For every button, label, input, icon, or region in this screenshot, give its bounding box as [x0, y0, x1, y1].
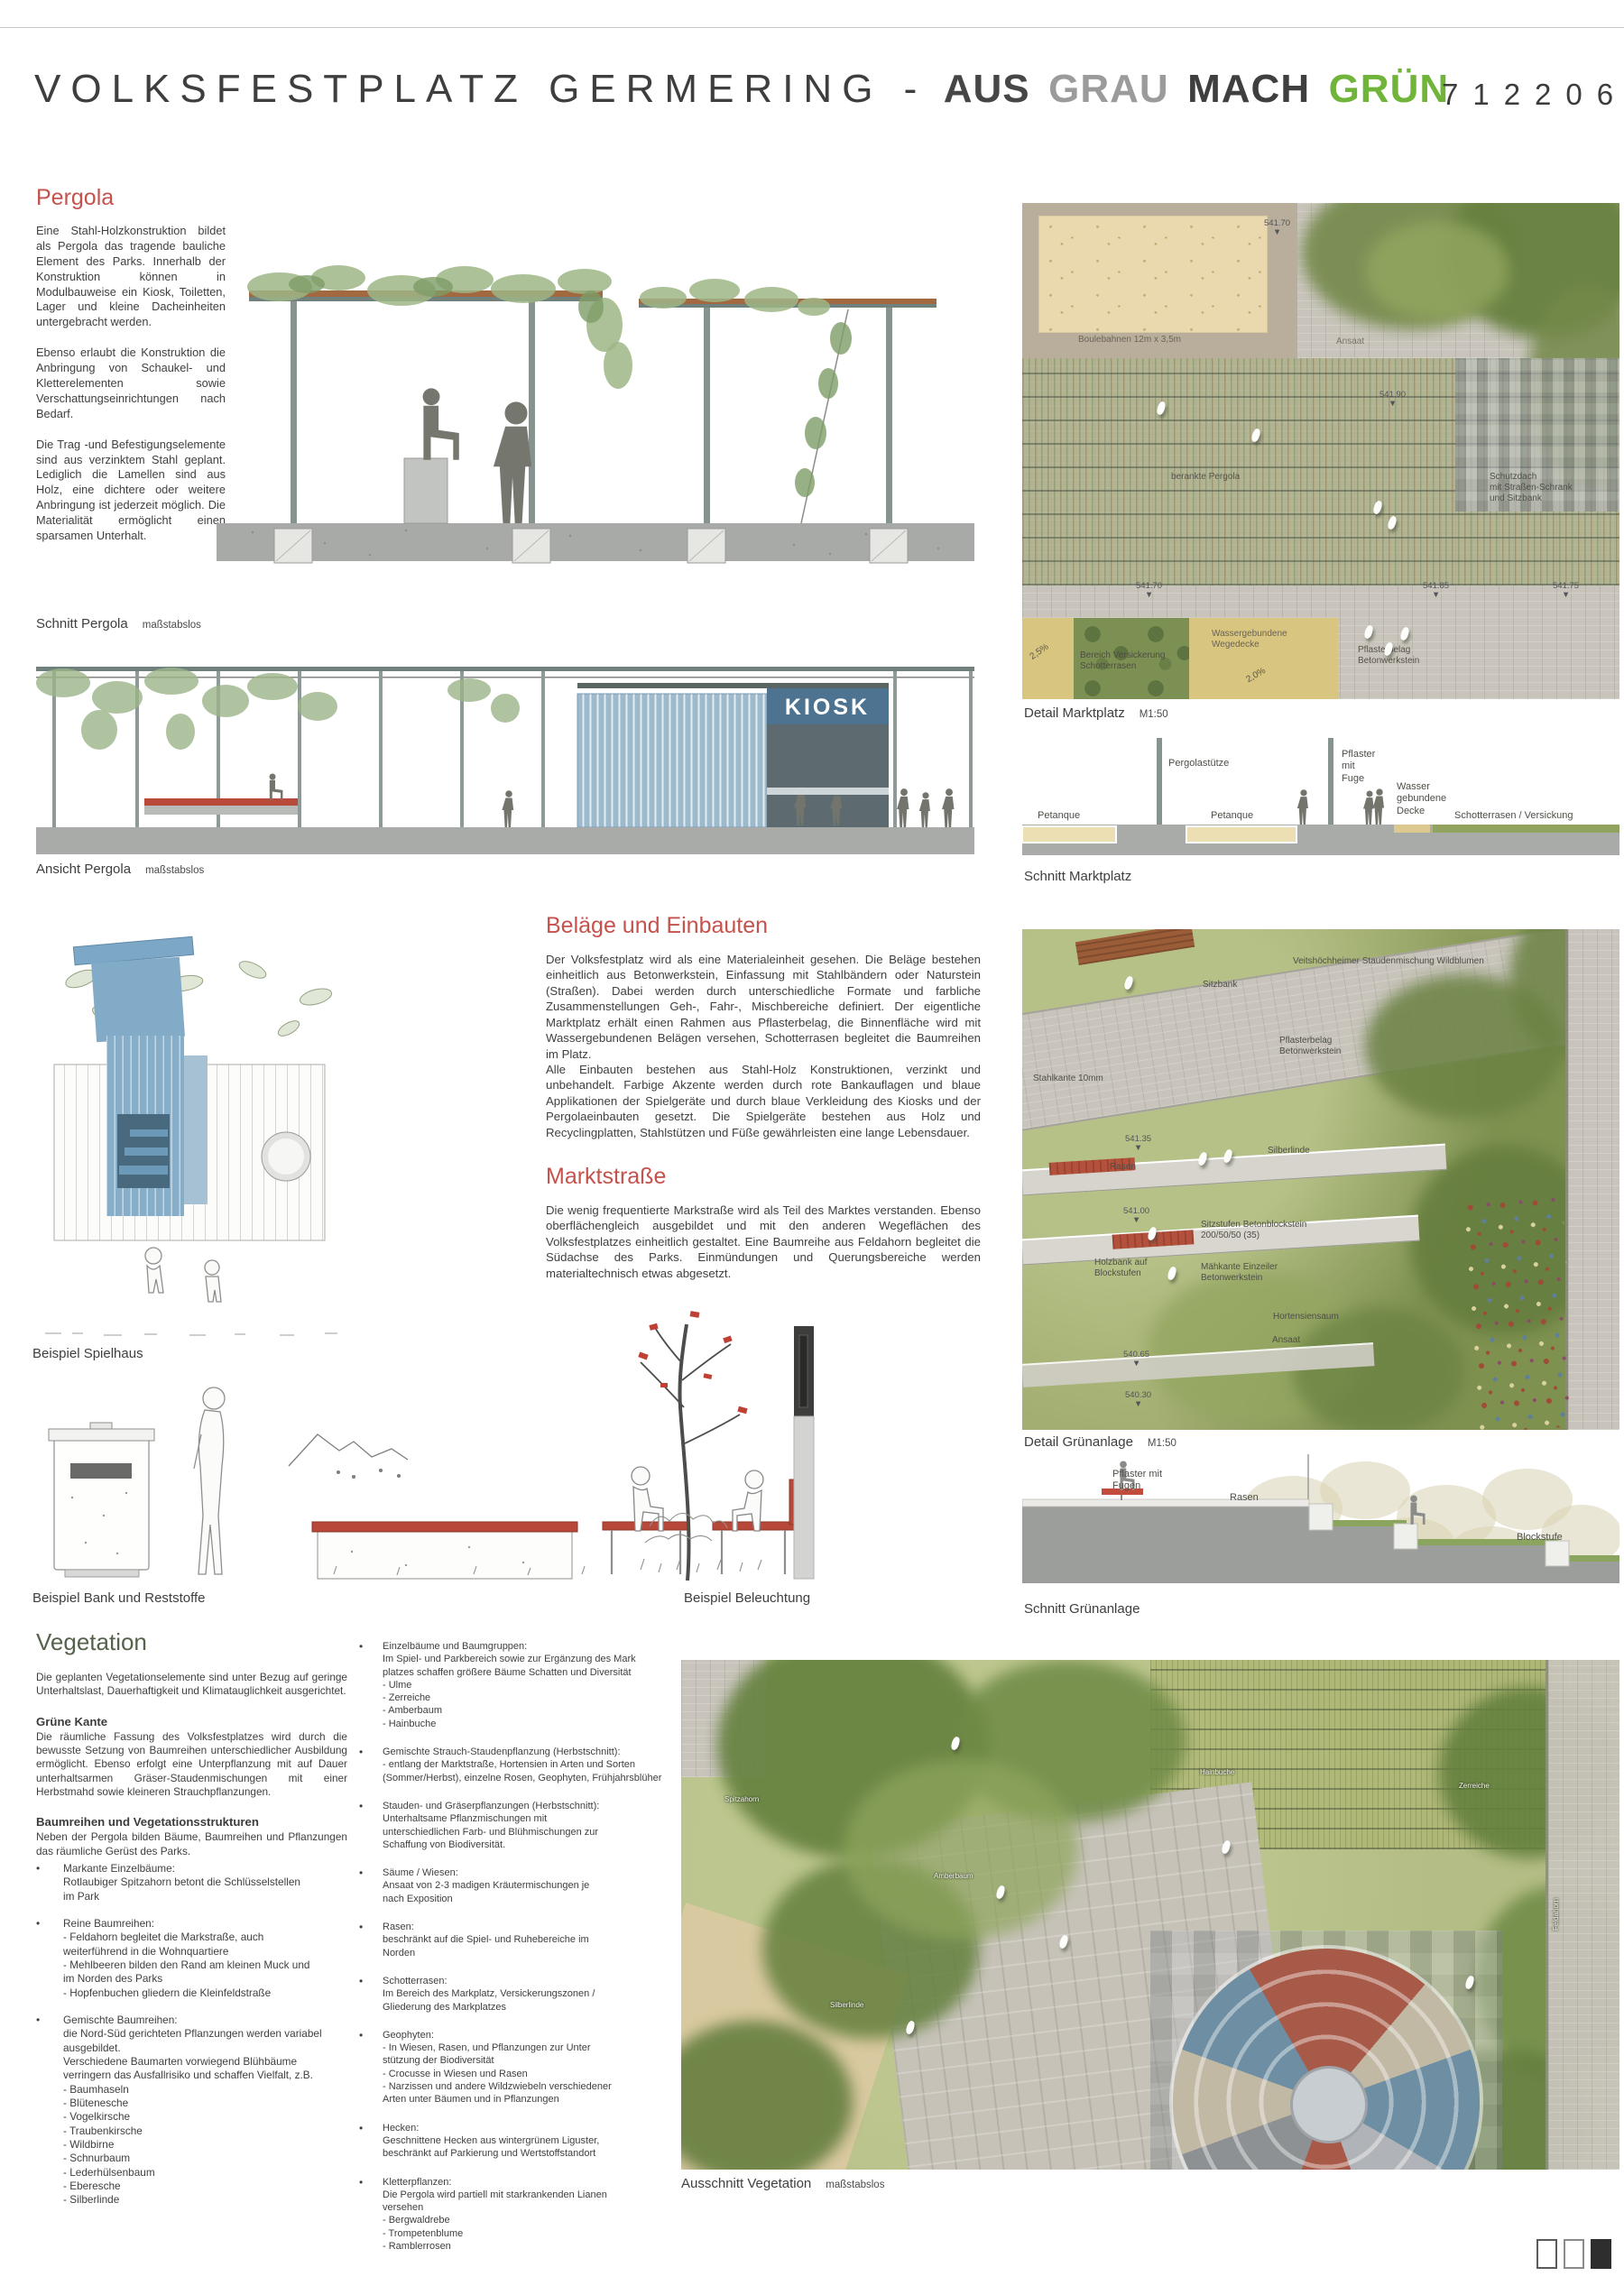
bullet-lines: Die Pergola wird partiell mit starkranke…: [383, 2189, 677, 2253]
list-item: •Rasen:beschränkt auf die Spiel- und Ruh…: [359, 1921, 677, 1959]
bullet-lines: Geschnittene Hecken aus wintergrünem Lig…: [383, 2134, 677, 2161]
page-box-3-active: [1591, 2239, 1611, 2269]
pflaster-slab: [1022, 1499, 1309, 1507]
gruene-kante-text: Die räumliche Fassung des Volksfestplatz…: [36, 1730, 347, 1800]
bullet-title: Säume / Wiesen:: [383, 1866, 677, 1879]
plant-tag: Spitzahorn: [724, 1795, 759, 1803]
elev-marker: 540.65 ▼: [1123, 1350, 1149, 1368]
fruit-tree-sketch: [638, 1311, 747, 1581]
mosaic-circle-center: [1290, 2066, 1368, 2143]
mountain-scribble: [289, 1434, 408, 1478]
caption-schnitt-pergola: Schnitt Pergolamaßstabslos: [36, 616, 201, 631]
bench-long: [312, 1522, 577, 1579]
page-box-2: [1564, 2239, 1584, 2269]
label-maehkante: Mähkante Einzeiler Betonwerkstein: [1201, 1262, 1278, 1284]
caption-ausschnitt-vegetation: Ausschnitt Vegetationmaßstabslos: [681, 2176, 884, 2191]
label-sitzbank: Sitzbank: [1203, 980, 1237, 991]
tree-canopy-light: [1365, 221, 1509, 320]
seated-figures-sketch: [632, 1467, 763, 1531]
plant-tag: Hainbuche: [1200, 1768, 1234, 1776]
vegetation-list-col2-wrap: •Einzelbäume und Baumgruppen:Im Spiel- u…: [359, 1640, 677, 2268]
plant-tag: Feldahorn: [1552, 1898, 1560, 1931]
section-person-3: [1373, 788, 1384, 825]
label-schotterrasen-versickung: Schotterrasen / Versickung: [1454, 810, 1573, 822]
title-aus: AUS: [944, 67, 1030, 111]
elev-marker: 541.90 ▼: [1379, 391, 1406, 408]
vegetation-list-col1: •Markante Einzelbäume:Rotlaubiger Spitza…: [36, 1862, 347, 2207]
plan-figure: [1399, 626, 1410, 641]
caption-detail-gruenanlage: Detail GrünanlageM1:50: [1024, 1434, 1176, 1450]
petanque-inset-1: [1022, 826, 1116, 843]
bullet-lines: Ansaat von 2-3 madigen Kräutermischungen…: [383, 1879, 677, 1905]
caption-schnitt-gruenanlage: Schnitt Grünanlage: [1024, 1601, 1140, 1617]
detail-gruenanlage-plan: Veitshöchheimer Staudenmischung Wildblum…: [1022, 929, 1619, 1430]
bullet-title: Geophyten:: [383, 2029, 677, 2042]
vegetation-section-text: Vegetation Die geplanten Vegetationselem…: [36, 1628, 347, 2221]
bullet-title: Hecken:: [383, 2122, 677, 2134]
bullet-title: Schotterrasen:: [383, 1975, 677, 1987]
list-item: •Gemischte Baumreihen:die Nord-Süd geric…: [36, 2014, 347, 2207]
label-pflasterbelag: Pflasterbelag Betonwerkstein: [1279, 1036, 1341, 1057]
belaege-section-text: Beläge und Einbauten Der Volksfestplatz …: [546, 913, 981, 1296]
marktstrasse-strip: [1565, 929, 1619, 1430]
poster: VOLKSFESTPLATZ GERMERING - AUS GRAU MACH…: [0, 0, 1624, 2295]
tree-canopy-light: [844, 1759, 1078, 1940]
title-gruen: GRÜN: [1329, 67, 1450, 111]
boule-court: [1038, 216, 1268, 333]
bullet-lines: - In Wiesen, Rasen, und Pflanzungen zur …: [383, 2042, 677, 2106]
ansicht-ground: [36, 827, 974, 854]
caption-schnitt-marktplatz: Schnitt Marktplatz: [1024, 869, 1131, 884]
wassergebundene-strip: [1394, 825, 1430, 833]
label-staudenmischung: Veitshöchheimer Staudenmischung Wildblum…: [1293, 956, 1484, 967]
bullet-lines: die Nord-Süd gerichteten Pflanzungen wer…: [63, 2027, 347, 2207]
hortensien-band: [1461, 1192, 1578, 1430]
petanque-inset-2: [1186, 826, 1296, 843]
cube-bench: [404, 458, 448, 523]
vegetation-heading: Vegetation: [36, 1628, 347, 1656]
pergola-stuetze-1: [1157, 738, 1162, 825]
label-berankte-pergola: berankte Pergola: [1171, 472, 1240, 483]
label-pflaster-mit-fuge: Pflaster mit Fuge: [1342, 749, 1375, 785]
pergola-paragraph-1: Eine Stahl-Holzkonstruktion bildet als P…: [36, 224, 226, 330]
pergola-heading: Pergola: [36, 185, 226, 211]
bullet-lines: Unterhaltsame Pflanzmischungen mit unter…: [383, 1812, 677, 1851]
seated-person: [270, 774, 283, 800]
elev-marker: 541.70 ▼: [1136, 582, 1162, 599]
page-title: VOLKSFESTPLATZ GERMERING -: [34, 67, 927, 111]
label-pergolastuetze: Pergolastütze: [1168, 758, 1229, 770]
bench-brown: [1075, 929, 1195, 965]
label-hortensiensaum: Hortensiensaum: [1273, 1312, 1339, 1323]
label-schutzdach: Schutzdach mit Straßen-Schrank und Sitzb…: [1490, 472, 1573, 505]
caption-beispiel-beleuchtung: Beispiel Beleuchtung: [684, 1590, 810, 1606]
belaege-heading: Beläge und Einbauten: [546, 913, 981, 939]
person-walking: [502, 790, 513, 827]
label-ansaat: Ansaat: [1336, 336, 1364, 347]
list-item: •Einzelbäume und Baumgruppen:Im Spiel- u…: [359, 1640, 677, 1730]
bench-short: [603, 1522, 689, 1574]
list-item: •Kletterpflanzen:Die Pergola wird partie…: [359, 2176, 677, 2254]
header: VOLKSFESTPLATZ GERMERING - AUS GRAU MACH…: [34, 67, 1449, 112]
title-mach: MACH: [1187, 67, 1310, 111]
vegetation-intro: Die geplanten Vegetationselemente sind u…: [36, 1671, 347, 1699]
top-rule: [0, 27, 1624, 28]
list-item: •Schotterrasen:Im Bereich des Markplatz,…: [359, 1975, 677, 2014]
elev-marker: 541.85 ▼: [1423, 582, 1449, 599]
elev-marker: 541.35 ▼: [1125, 1135, 1151, 1152]
pergola-paragraph-2: Ebenso erlaubt die Konstruktion die Anbr…: [36, 346, 226, 421]
ground-band: [217, 523, 974, 561]
standing-man-sketch: [194, 1387, 225, 1574]
plan-figure: [1167, 1266, 1177, 1281]
elev-marker: 541.75 ▼: [1553, 582, 1579, 599]
bullet-lines: Im Spiel- und Parkbereich sowie zur Ergä…: [383, 1653, 677, 1730]
bullet-title: Rasen:: [383, 1921, 677, 1933]
label-ansaat: Ansaat: [1272, 1335, 1300, 1346]
bullet-title: Gemischte Strauch-Staudenpflanzung (Herb…: [383, 1746, 677, 1758]
label-versickerung: Bereich Versickerung Schotterrasen: [1080, 650, 1166, 672]
bench-red-seat: [144, 798, 298, 806]
caption-detail-marktplatz: Detail MarktplatzM1:50: [1024, 705, 1168, 721]
bullet-title: Stauden- und Gräserpflanzungen (Herbstsc…: [383, 1800, 677, 1812]
page-box-1: [1536, 2239, 1557, 2269]
list-item: •Reine Baumreihen:- Feldahorn begleitet …: [36, 1917, 347, 2000]
elev-marker: 540.30 ▼: [1125, 1391, 1151, 1408]
label-holzbank: Holzbank auf Blockstufen: [1094, 1258, 1147, 1279]
ansicht-foliage: [36, 668, 520, 750]
label-blockstufe: Blockstufe: [1517, 1532, 1563, 1544]
kiosk-counter: [767, 788, 889, 795]
plan-figure: [1123, 975, 1134, 991]
bullet-title: Markante Einzelbäume:: [63, 1862, 347, 1876]
detail-marktplatz-plan: Boulebahnen 12m x 3,5m 541.70 ▼ Ansaat b…: [1022, 203, 1619, 699]
ansicht-pergola-drawing: KIOSK: [36, 654, 974, 866]
list-item: •Stauden- und Gräserpflanzungen (Herbsts…: [359, 1800, 677, 1851]
bullet-lines: Im Bereich des Markplatz, Versickerungsz…: [383, 1987, 677, 2014]
person-group-2: [919, 792, 930, 827]
kiosk-roof-edge: [577, 683, 889, 688]
section-person-2: [1363, 790, 1374, 825]
waste-bin: [49, 1423, 154, 1577]
gruene-kante-subheading: Grüne Kante: [36, 1715, 347, 1728]
caption-ansicht-pergola: Ansicht Pergolamaßstabslos: [36, 862, 204, 877]
bullet-lines: Rotlaubiger Spitzahorn betont die Schlüs…: [63, 1876, 347, 1903]
pergola-section-text: Pergola Eine Stahl-Holzkonstruktion bild…: [36, 185, 226, 559]
plant-tag: Zerreiche: [1459, 1782, 1490, 1790]
page-indicator: [1536, 2239, 1611, 2269]
elev-marker: 541.00 ▼: [1123, 1207, 1149, 1224]
kiosk-sign-text: KIOSK: [785, 695, 870, 720]
marktstrasse-heading: Marktstraße: [546, 1164, 981, 1190]
sitting-person-silhouette: [423, 388, 459, 459]
section-person-1: [1297, 789, 1308, 825]
label-petanque-1: Petanque: [1038, 810, 1080, 822]
label-rasen: Rasen: [1110, 1162, 1136, 1173]
street-lamp: [794, 1326, 814, 1579]
list-item: •Geophyten:- In Wiesen, Rasen, und Pflan…: [359, 2029, 677, 2106]
label-sitzstufen: Sitzstufen Betonblockstein 200/50/50 (35…: [1201, 1220, 1306, 1241]
baumreihen-subheading: Baumreihen und Vegetationsstrukturen: [36, 1815, 347, 1829]
caption-beispiel-bank: Beispiel Bank und Reststoffe: [32, 1590, 206, 1606]
pergola-foliage: [247, 265, 830, 389]
label-wasser-gebundene-decke: Wasser gebundene Decke: [1397, 781, 1446, 817]
label-silberlinde: Silberlinde: [1268, 1146, 1310, 1157]
elev-marker: 541.70 ▼: [1264, 219, 1290, 236]
label-stahlkante: Stahlkante 10mm: [1033, 1074, 1103, 1084]
schnitt-marktplatz-drawing: [1022, 733, 1619, 868]
schnitt-pergola-drawing: [217, 171, 974, 604]
label-pflaster-mit-fugen: Pflaster mit Fugen: [1112, 1469, 1162, 1493]
belaege-paragraph-1: Der Volksfestplatz wird als eine Materia…: [546, 952, 981, 1062]
marktstrasse-paragraph: Die wenig frequentierte Markstraße wird …: [546, 1203, 981, 1281]
bullet-title: Gemischte Baumreihen:: [63, 2014, 347, 2027]
porthole-inner: [268, 1138, 304, 1175]
pergola-paragraph-3: Die Trag -und Befestigungselemente sind …: [36, 438, 226, 544]
label-petanque-2: Petanque: [1211, 810, 1253, 822]
bullet-title: Kletterpflanzen:: [383, 2176, 677, 2189]
project-number: 712206: [1442, 78, 1624, 112]
vegetation-list-col2: •Einzelbäume und Baumgruppen:Im Spiel- u…: [359, 1640, 677, 2253]
label-boulebahnen: Boulebahnen 12m x 3,5m: [1078, 335, 1181, 346]
bullet-lines: - Feldahorn begleitet die Markstraße, au…: [63, 1931, 347, 2000]
wegedecke-block-left: [1022, 618, 1074, 699]
standing-person-silhouette: [494, 401, 531, 523]
baumreihen-text: Neben der Pergola bilden Bäume, Baumreih…: [36, 1830, 347, 1858]
title-grau: GRAU: [1048, 67, 1169, 111]
person-group-3: [942, 788, 954, 827]
spielhaus-sketch: [18, 929, 397, 1340]
kiosk-slat-wall: [577, 694, 767, 827]
label-rasen-section: Rasen: [1230, 1492, 1259, 1504]
pergola-stuetze-2: [1328, 738, 1333, 825]
kiosk-interior: [767, 724, 889, 827]
bench-base: [144, 806, 298, 815]
label-wegedecke: Wassergebundene Wegedecke: [1212, 629, 1287, 650]
plant-tag: Amberbaum: [934, 1872, 973, 1880]
bullet-title: Einzelbäume und Baumgruppen:: [383, 1640, 677, 1653]
bullet-lines: beschränkt auf die Spiel- und Ruhebereic…: [383, 1933, 677, 1959]
list-item: •Hecken:Geschnittene Hecken aus wintergr…: [359, 2122, 677, 2161]
list-item: •Säume / Wiesen:Ansaat von 2-3 madigen K…: [359, 1866, 677, 1905]
bullet-lines: - entlang der Marktstraße, Hortensien in…: [383, 1758, 677, 1784]
ausschnitt-vegetation-plan: Spitzahorn Amberbaum Silberlinde Hainbuc…: [681, 1660, 1619, 2170]
schotterrasen-strip: [1433, 825, 1619, 833]
bank-beleuchtung-sketch: [18, 1299, 920, 1597]
list-item: •Gemischte Strauch-Staudenpflanzung (Her…: [359, 1746, 677, 1784]
list-item: •Markante Einzelbäume:Rotlaubiger Spitza…: [36, 1862, 347, 1903]
bullet-title: Reine Baumreihen:: [63, 1917, 347, 1931]
kid-figures: [145, 1248, 221, 1302]
belaege-paragraph-2: Alle Einbauten bestehen aus Stahl-Holz K…: [546, 1062, 981, 1140]
plan-figure: [1363, 624, 1374, 640]
person-group-1: [897, 788, 909, 827]
plant-tag: Silberlinde: [830, 2001, 863, 2009]
